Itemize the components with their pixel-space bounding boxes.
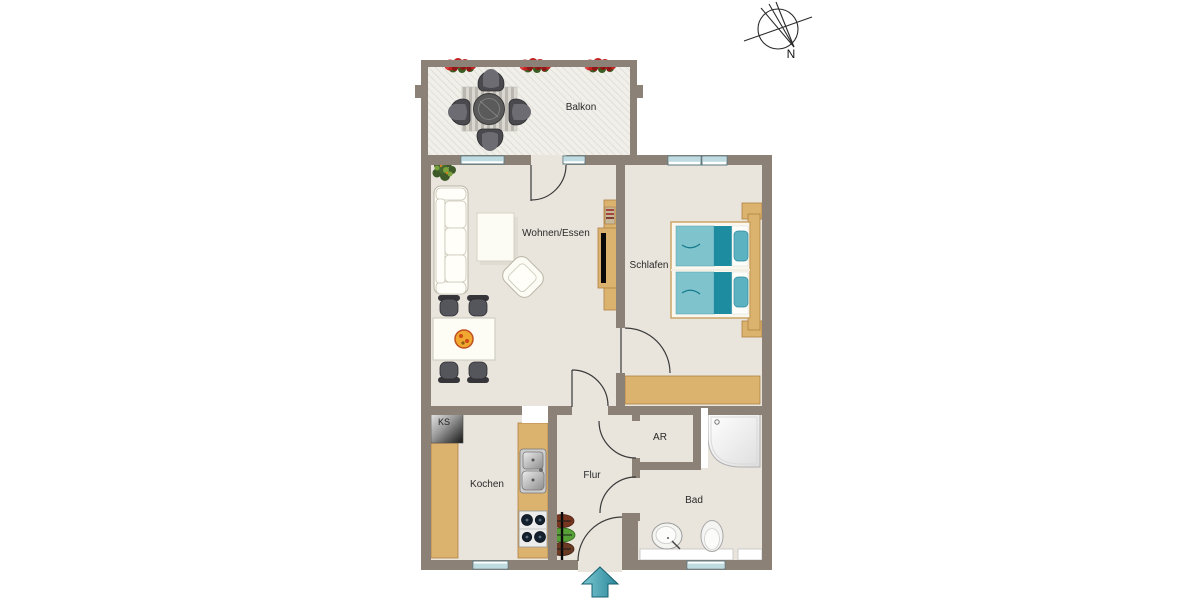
tv-screen	[601, 233, 606, 283]
balcony-wall-left	[421, 60, 428, 155]
balcony-pillar-right	[637, 85, 643, 98]
wall-hall-right-c	[622, 513, 638, 560]
coffee-table	[477, 213, 514, 261]
compass-rose: N	[744, 2, 812, 61]
fruit-bowl	[455, 330, 473, 348]
wall-divider-upper	[616, 165, 625, 328]
kitchen-sink	[520, 449, 546, 493]
kitchen-counter-left	[431, 443, 458, 558]
room-label-storage: AR	[653, 432, 667, 443]
double-bed	[671, 222, 750, 318]
floorplan-drawing: KS	[0, 0, 1200, 600]
window-balcony-side	[563, 156, 585, 164]
north-label: N	[787, 47, 796, 61]
room-label-hallway: Flur	[583, 470, 601, 481]
wardrobe	[625, 376, 760, 404]
bath-counter	[640, 549, 733, 560]
sofa	[434, 186, 468, 294]
wall-storage-right	[693, 415, 701, 462]
wall-hall-right-a	[632, 415, 640, 421]
wall-right	[762, 155, 772, 570]
wall-living-bottom-a	[431, 406, 522, 415]
wall-opening-kitchen-hatch	[522, 406, 548, 423]
dining-chair	[438, 295, 460, 316]
room-label-kitchen: Kochen	[470, 479, 504, 490]
fridge-label: KS	[438, 417, 450, 427]
window-bedroom-left	[668, 156, 701, 165]
balcony-wall-right	[630, 60, 637, 155]
floorplan-page: KS	[0, 0, 1200, 600]
shower	[708, 414, 760, 467]
wall-storage-bottom	[632, 462, 701, 470]
dining-chair	[438, 362, 460, 383]
dining-chair	[467, 362, 489, 383]
pillow-top	[734, 231, 748, 261]
wall-opening-shower	[701, 408, 708, 468]
wall-bedroom-bottom	[608, 406, 762, 415]
window-bathroom	[687, 561, 725, 569]
window-living	[461, 156, 504, 164]
wall-divider-lower	[616, 373, 625, 406]
wall-left	[421, 155, 431, 570]
balcony-wall-top	[421, 60, 637, 67]
bath-cabinet	[738, 549, 762, 560]
room-label-living: Wohnen/Essen	[522, 228, 590, 239]
toilet	[701, 521, 723, 552]
room-label-bedroom: Schlafen	[630, 260, 669, 271]
dining-chair	[467, 295, 489, 316]
room-label-bathroom: Bad	[685, 495, 703, 506]
balcony-pillar-left	[415, 85, 421, 98]
stove	[519, 511, 547, 547]
wall-kitchen-right	[548, 415, 557, 560]
window-kitchen	[473, 561, 508, 569]
window-bedroom-right	[702, 156, 727, 165]
bath-sink	[652, 523, 682, 549]
room-label-balcony: Balkon	[566, 102, 597, 113]
balcony-door-opening	[531, 155, 566, 165]
wall-living-bottom-b	[548, 406, 572, 415]
pillow-bottom	[734, 277, 748, 307]
